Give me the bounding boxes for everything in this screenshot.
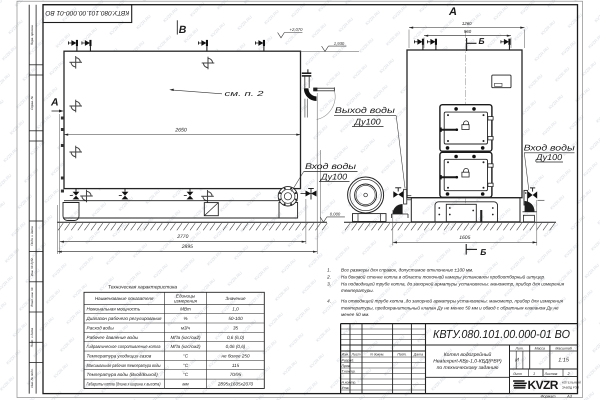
svg-text:0,06 (0,6): 0,06 (0,6) [226,344,246,349]
svg-text:Температура уходящих газов: Температура уходящих газов [87,353,152,358]
svg-text:МВт: МВт [180,307,191,312]
svg-text:Рабочее давление воды: Рабочее давление воды [87,335,139,340]
svg-text:температуры, предохранительный: температуры, предохранительный клапан Ду… [341,305,559,310]
svg-text:см. п. 2: см. п. 2 [225,89,264,98]
svg-text:Котел водогрейный: Котел водогрейный [444,352,492,358]
svg-text:Изм.: Изм. [342,353,349,357]
svg-text:А: А [50,97,59,109]
svg-text:2895: 2895 [181,244,193,250]
svg-text:по техническому заданию: по техническому заданию [437,365,499,371]
svg-text:Ду100: Ду100 [354,117,381,127]
svg-text:Ду100: Ду100 [320,172,347,182]
svg-text:960: 960 [464,29,472,34]
svg-text:Температура воды (Вход/Выход): Температура воды (Вход/Выход) [87,372,159,377]
svg-text:Инв. № подл.: Инв. № подл. [30,368,34,387]
svg-text:МПа (кгс/см2): МПа (кгс/см2) [170,344,200,349]
svg-text:Heatexpert-КВр-1,0-КБД(РВР): Heatexpert-КВр-1,0-КБД(РВР) [433,359,502,365]
svg-text:4.: 4. [327,299,331,304]
svg-text:2770: 2770 [176,234,188,240]
svg-text:Номинальная мощность: Номинальная мощность [87,307,141,312]
svg-text:70/95: 70/95 [230,372,242,377]
svg-text:Максимальная рабочая температу: Максимальная рабочая температура воды [87,363,161,368]
svg-text:В: В [179,24,187,36]
svg-text:Справ. №: Справ. № [30,95,34,110]
svg-text:2650: 2650 [174,128,187,134]
svg-text:35: 35 [233,325,239,330]
svg-text:50-100: 50-100 [228,316,243,321]
svg-text:1: 1 [533,372,535,376]
svg-text:Лист: Лист [350,353,360,357]
svg-text:2.: 2. [326,275,331,280]
svg-text:Б: Б [480,247,486,257]
svg-text:KVZR: KVZR [528,378,559,392]
svg-text:ЗАВОД РЭП: ЗАВОД РЭП [562,385,579,389]
svg-text:Расход воды: Расход воды [87,325,115,330]
svg-text:На отводящей трубе котла ,до з: На отводящей трубе котла ,до запорной ар… [341,299,563,304]
svg-text:°С: °С [183,363,189,368]
svg-text:температуры.: температуры. [341,288,374,293]
svg-text:1,930: 1,930 [334,41,345,46]
svg-text:Значение: Значение [225,296,246,301]
svg-text:м3/ч: м3/ч [181,325,191,330]
svg-text:Диапазон рабочего регулировани: Диапазон рабочего регулирования [86,316,163,321]
svg-text:КВТУ.080.101.00.000-01 ВО: КВТУ.080.101.00.000-01 ВО [433,328,570,341]
svg-text:Перв. примен.: Перв. примен. [30,24,34,45]
svg-text:мм: мм [182,382,189,387]
svg-text:Гидравлическое сопротивление к: Гидравлическое сопротивление котла [87,344,161,349]
svg-text:1:15: 1:15 [558,358,570,364]
svg-text:А: А [448,6,457,18]
svg-text:Листов: Листов [544,372,558,376]
svg-text:МПа (кгс/см2): МПа (кгс/см2) [170,335,200,340]
svg-text:Лит.: Лит. [514,347,523,351]
svg-text:115: 115 [232,363,240,368]
svg-text:менее 50 мм.: менее 50 мм. [341,312,370,317]
svg-text:Единицы: Единицы [176,293,196,298]
svg-text:+2,070: +2,070 [290,27,304,32]
svg-text:КОТЕЛЬНЫЙ: КОТЕЛЬНЫЙ [562,381,581,385]
svg-text:Габариты котла (длина х ширина: Габариты котла (длина х ширина х высота) [87,382,161,387]
svg-text:2895х1605х2070: 2895х1605х2070 [217,382,254,387]
svg-text:Вход воды: Вход воды [524,143,575,153]
svg-text:Масса: Масса [535,347,545,351]
svg-text:Дата: Дата [413,353,423,357]
svg-text:измерения: измерения [174,299,198,304]
svg-text:Подп. и дата: Подп. и дата [30,226,34,246]
svg-text:Вход воды: Вход воды [305,161,356,171]
svg-text:Подп.: Подп. [397,353,406,357]
svg-text:%: % [183,316,187,321]
svg-text:Утв.: Утв. [342,386,350,390]
svg-text:1605: 1605 [459,235,470,241]
svg-text:°С: °С [183,353,189,358]
svg-text:Наименование показателя: Наименование показателя [95,296,154,301]
svg-text:На подводящей трубе котла, до: На подводящей трубе котла, до запорной а… [341,281,565,286]
svg-text:3.: 3. [327,281,331,286]
svg-text:1.: 1. [327,268,331,273]
svg-text:не более 250: не более 250 [221,353,249,358]
svg-text:Все размеры для справок, допус: Все размеры для справок, допустимое откл… [341,268,473,273]
svg-text:Масштаб: Масштаб [555,347,572,351]
svg-text:0.000: 0.000 [330,212,341,217]
svg-text:Формат: Формат [540,394,555,398]
svg-text:Н.контр.: Н.контр. [342,381,357,385]
svg-text:Взам. инв. №: Взам. инв. № [30,287,34,307]
svg-text:Т.контр.: Т.контр. [342,370,356,374]
svg-text:И: И [515,358,519,364]
svg-text:Пров.: Пров. [342,364,351,368]
svg-text:1,0: 1,0 [232,307,239,312]
svg-text:Инв. № дубл.: Инв. № дубл. [30,257,34,276]
svg-text:Лист: Лист [512,372,522,376]
svg-text:Ду100: Ду100 [535,152,562,162]
svg-text:На боковой стенке котла в обла: На боковой стенке котла в области топочн… [341,275,545,280]
svg-text:Подп. и дата: Подп. и дата [30,328,34,348]
svg-text:Б: Б [478,36,484,46]
svg-text:0,6 (6,0): 0,6 (6,0) [227,335,245,340]
svg-text:Выход воды: Выход воды [335,105,395,115]
svg-text:Техническая характеристика: Техническая характеристика [108,285,178,291]
svg-text:N докум.: N докум. [370,353,384,357]
svg-text:Разраб.: Разраб. [342,359,355,363]
svg-text:°С: °С [183,372,189,377]
svg-text:1260: 1260 [462,21,472,26]
svg-text:А3: А3 [566,394,573,398]
svg-text:КВТУ.080.101.00.000-01 ВО: КВТУ.080.101.00.000-01 ВО [45,9,129,16]
